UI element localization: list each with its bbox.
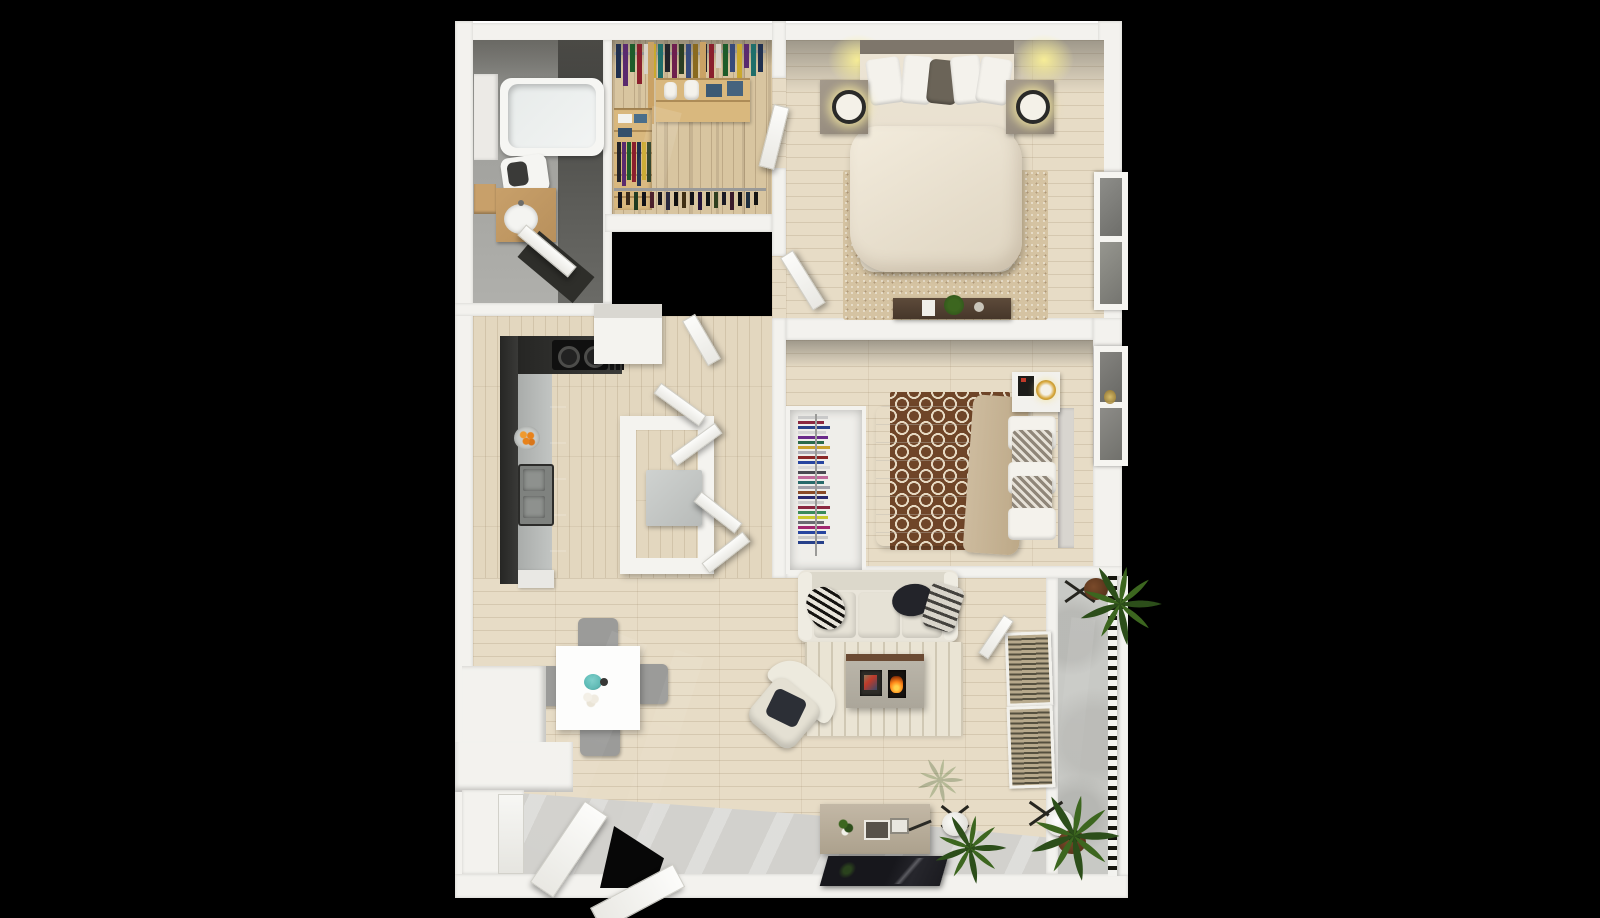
wall-shelf-bottles <box>474 184 496 214</box>
tv-reflection-leaf <box>836 862 859 878</box>
closet-towel-1 <box>618 114 632 123</box>
kitchen-cabinet-left-run <box>500 336 520 584</box>
fireplace-console <box>846 654 924 708</box>
bed1-folded-comforter <box>850 126 1022 272</box>
kitchen-end-cabinet <box>518 570 554 588</box>
closet-hanging-clothes-right <box>702 44 765 78</box>
bed2-pillow-chevron-1 <box>1012 430 1052 466</box>
floorplan-stage <box>0 18 1600 918</box>
louvered-shutter-bottom <box>1007 705 1056 789</box>
half-wall-upper <box>462 666 546 746</box>
closet-towel-roll-2 <box>684 80 699 100</box>
bedroom2-ceiling-shade <box>786 340 1093 368</box>
tv-reflection-streak <box>890 858 927 884</box>
living-palm-plant <box>930 808 1010 888</box>
closet-south-wall <box>605 214 772 232</box>
hall-closet-top-face <box>594 304 662 318</box>
window-lamp-reflection <box>1104 390 1116 404</box>
bedrooms-west-wall-upper <box>772 21 786 78</box>
fruit-oranges <box>518 430 536 446</box>
media-sideboard <box>820 804 930 854</box>
closet-towel-2 <box>634 114 647 123</box>
balcony-palm-south <box>1022 786 1126 886</box>
sink-basin-bottom <box>523 496 545 518</box>
bedrooms-west-wall-lower <box>772 318 786 578</box>
closet-blue-box-1 <box>706 84 722 97</box>
nightstand-art-frame-red-dot <box>1021 378 1026 382</box>
fireplace-console-wood-top <box>846 654 924 661</box>
palm-reflection-ghost <box>912 754 968 806</box>
bathroom-side-shelf <box>474 74 498 160</box>
bedroom2-window-pane-bottom <box>1100 408 1122 460</box>
sideboard-plant-sprig <box>836 816 854 836</box>
bedroom1-window-pane-top <box>1100 178 1122 236</box>
fire-glow <box>890 676 903 693</box>
bedrooms-west-wall-mid <box>772 168 786 256</box>
bench-white-box <box>922 300 935 316</box>
louvered-shutter-top <box>1005 631 1054 707</box>
cooktop-burner-1 <box>558 346 580 368</box>
sink-basin-top <box>523 469 545 491</box>
vanity-faucet <box>518 200 524 206</box>
bathroom-closet-wall <box>603 40 612 303</box>
toilet-lid-open <box>506 161 529 188</box>
bathtub-basin <box>508 84 596 148</box>
nightstand-gold-lamp <box>1036 380 1056 400</box>
bed1-pillow-1 <box>865 56 905 106</box>
tv-panel <box>820 856 949 886</box>
bedroom1-bedroom2-wall <box>786 318 1093 340</box>
bed2-pillow-white-3 <box>1008 508 1056 540</box>
bed2-headboard <box>1058 408 1074 548</box>
hall-closet <box>594 304 662 364</box>
closet-towel-roll-1 <box>664 82 677 100</box>
closet-towel-3 <box>618 128 632 137</box>
bedroom2-closet-clothes-stack <box>798 416 830 546</box>
picture-art <box>864 675 877 690</box>
bench-deco-dot <box>974 302 984 312</box>
bench-plant <box>944 295 964 315</box>
bedroom1-window-pane-bottom <box>1100 242 1122 304</box>
console-picture-inset <box>860 670 882 696</box>
bathroom-south-wall <box>455 303 612 316</box>
table-lamp-right <box>1016 90 1050 124</box>
sideboard-frame-2 <box>890 818 909 834</box>
bedroom2-closet-rod <box>815 414 817 556</box>
kitchen-sink <box>518 464 554 526</box>
closet-blue-box-2 <box>727 81 743 96</box>
table-lamp-left <box>832 90 866 124</box>
sideboard-wand <box>908 820 931 832</box>
console-fire-inset <box>888 670 906 698</box>
nightstand-art-frame-1 <box>1016 374 1036 398</box>
washer <box>646 470 702 526</box>
bathtub <box>500 78 604 156</box>
sideboard-frame-1 <box>864 820 890 840</box>
ceiling-light-glow-right <box>1014 34 1074 86</box>
